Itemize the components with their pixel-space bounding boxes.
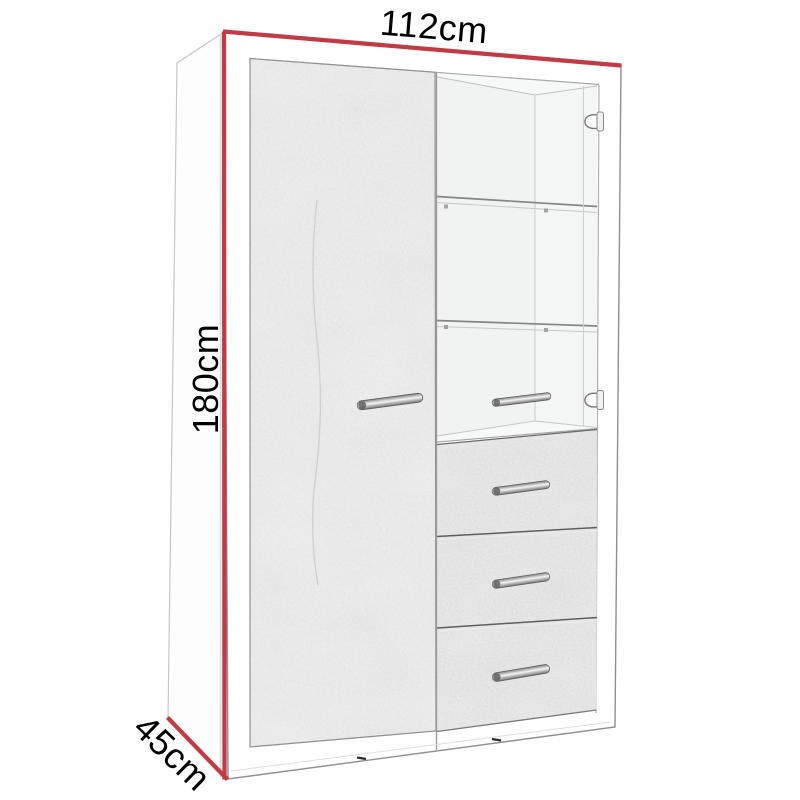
foot-mark <box>357 758 366 760</box>
furniture-dimension-diagram: 112cm 180cm 45cm <box>0 0 800 800</box>
foot-mark <box>492 739 501 741</box>
cabinet-illustration <box>0 0 800 800</box>
height-dimension-label: 180cm <box>183 317 229 441</box>
glass-display-section <box>437 73 604 443</box>
glass-door <box>437 73 597 443</box>
